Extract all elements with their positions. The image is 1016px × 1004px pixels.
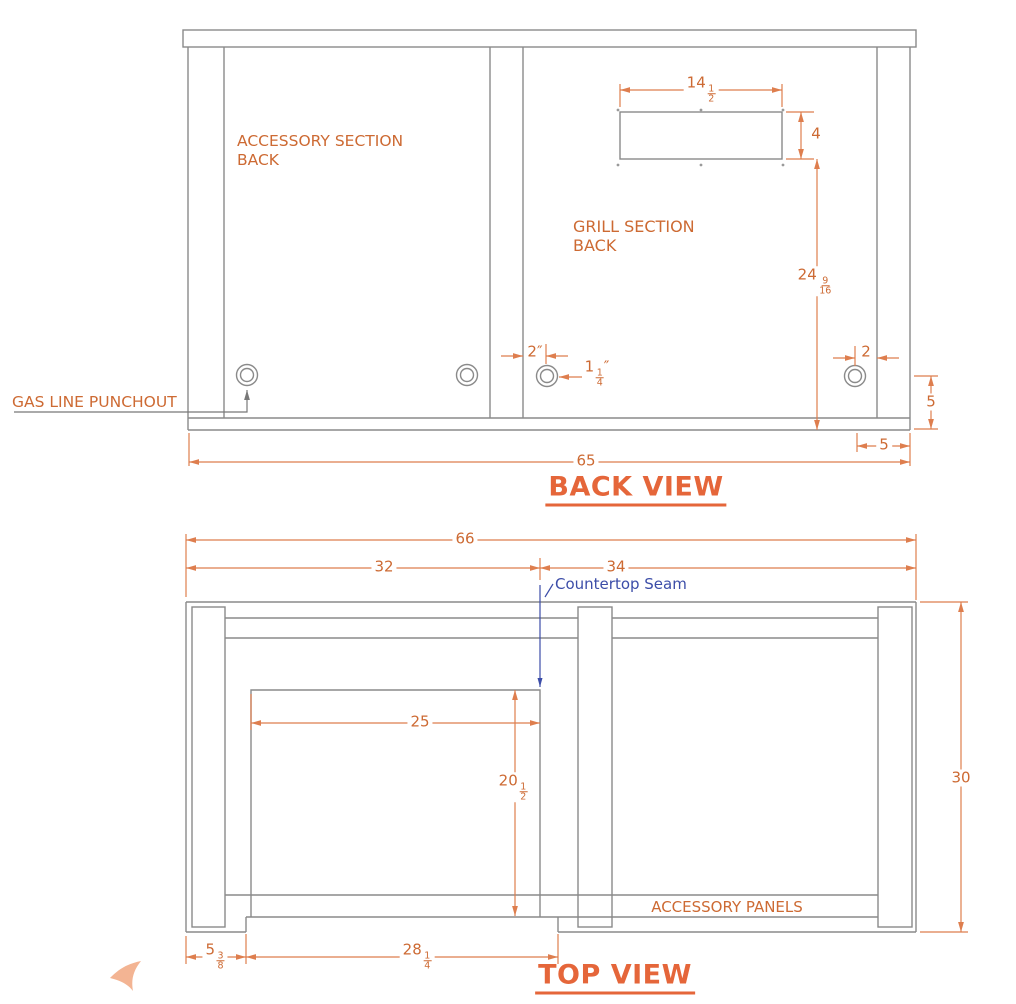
top-view-structure bbox=[186, 602, 916, 932]
dim-accessory-section-width: 34 bbox=[603, 559, 628, 576]
top-grill-cutout bbox=[251, 690, 540, 917]
dim-back-right-height: 24916 bbox=[795, 266, 836, 296]
gas-line-punchout-label: GAS LINE PUNCHOUT bbox=[12, 393, 177, 412]
dim-back-cutout-width: 1412 bbox=[684, 74, 719, 104]
back-view-title: BACK VIEW bbox=[545, 472, 726, 507]
dim-back-overall-width: 65 bbox=[573, 453, 598, 470]
grill-section-label: GRILL SECTION BACK bbox=[573, 217, 695, 255]
accessory-section-label: ACCESSORY SECTION BACK bbox=[237, 132, 403, 170]
dim-top-overall-depth: 30 bbox=[948, 770, 973, 787]
top-view-dimensions bbox=[186, 534, 968, 964]
back-panel-lines bbox=[188, 47, 910, 430]
back-view-structure bbox=[183, 30, 916, 430]
grip-dots bbox=[617, 109, 785, 167]
dim-punchout-right-inset: 5 bbox=[876, 437, 892, 454]
dim-front-notch-width: 2814 bbox=[400, 941, 435, 971]
dim-top-overall-width: 66 bbox=[452, 531, 477, 548]
back-vent-cutout bbox=[620, 112, 782, 159]
countertop-seam-line bbox=[540, 584, 553, 687]
dim-grill-cutout-width: 25 bbox=[407, 714, 432, 731]
logo-swoosh-icon bbox=[110, 961, 141, 991]
gas-punchout-holes bbox=[237, 365, 866, 387]
countertop-seam-label: Countertop Seam bbox=[555, 575, 687, 593]
dim-grill-section-width: 32 bbox=[371, 559, 396, 576]
drawing-canvas: ACCESSORY SECTION BACK GRILL SECTION BAC… bbox=[0, 0, 1016, 1004]
dim-punchout-offset-right: 2 bbox=[858, 344, 874, 361]
top-view-title: TOP VIEW bbox=[535, 960, 695, 995]
top-left-panel bbox=[192, 607, 225, 927]
top-rails bbox=[225, 618, 878, 895]
dim-back-cutout-height: 4 bbox=[808, 126, 824, 143]
dim-grill-cutout-depth: 2012 bbox=[496, 772, 531, 802]
back-countertop-cap bbox=[183, 30, 916, 47]
accessory-panels-label: ACCESSORY PANELS bbox=[651, 898, 803, 917]
top-right-panel bbox=[878, 607, 912, 927]
dim-punchout-diameter: 114″ bbox=[582, 358, 613, 388]
dim-front-notch-offset: 538 bbox=[202, 941, 227, 971]
dim-punchout-offset-left: 2″ bbox=[524, 344, 545, 361]
dim-punchout-center-height: 5 bbox=[923, 394, 939, 411]
cad-drawing bbox=[0, 0, 1016, 1004]
top-outline bbox=[186, 602, 916, 932]
top-middle-panel bbox=[578, 607, 612, 927]
